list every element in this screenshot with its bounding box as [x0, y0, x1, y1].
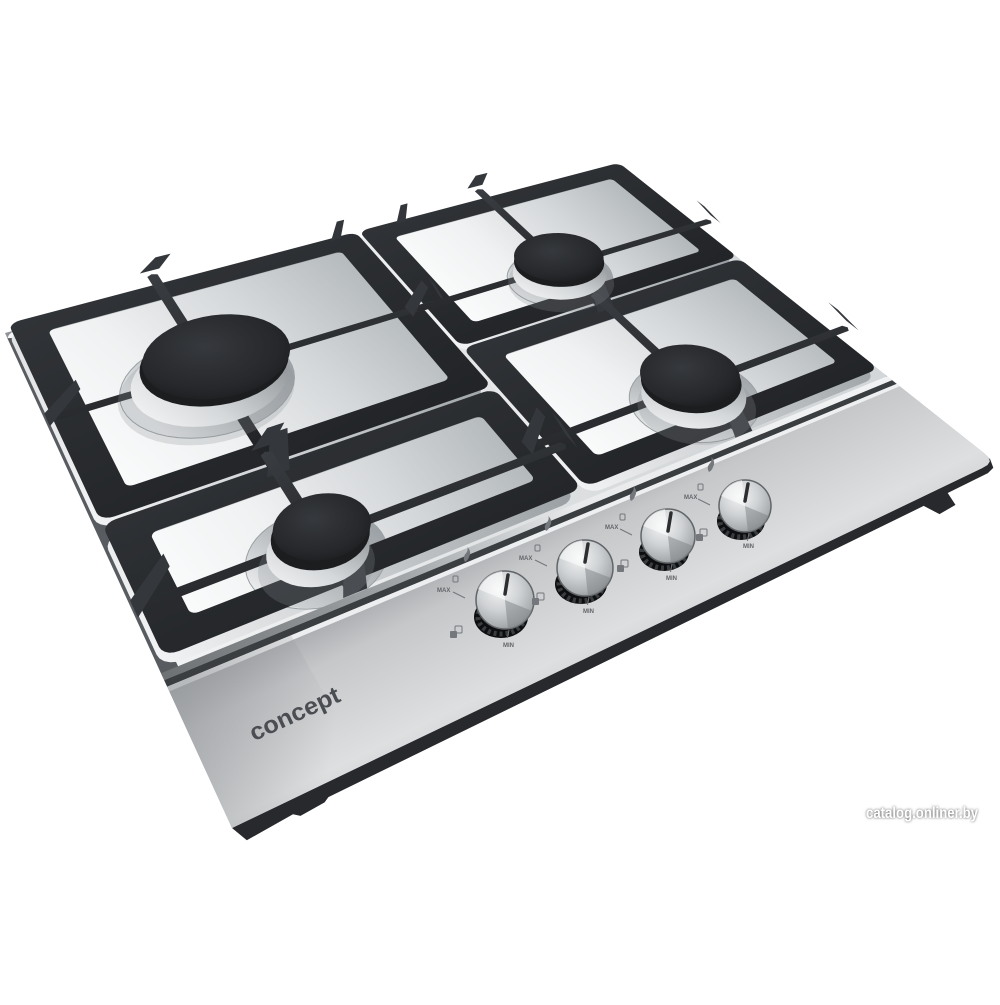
svg-text:MAX: MAX	[684, 495, 697, 501]
svg-text:MAX: MAX	[519, 556, 532, 562]
svg-text:MIN: MIN	[583, 609, 594, 615]
svg-text:catalog.onliner.by: catalog.onliner.by	[866, 805, 978, 822]
svg-text:MIN: MIN	[503, 643, 514, 649]
svg-text:MAX: MAX	[437, 588, 450, 594]
svg-text:MIN: MIN	[743, 544, 754, 550]
svg-text:MAX: MAX	[605, 525, 618, 531]
svg-text:MIN: MIN	[666, 576, 677, 582]
